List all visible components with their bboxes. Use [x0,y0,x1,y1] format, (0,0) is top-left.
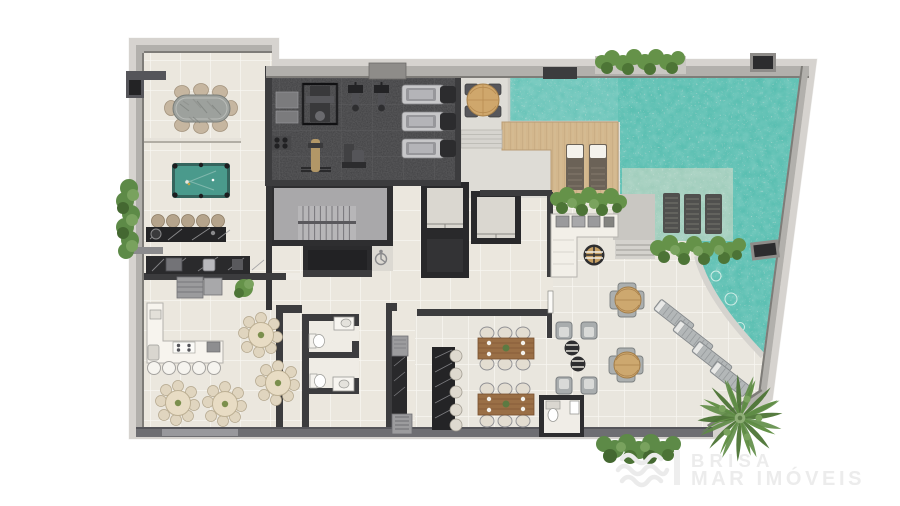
svg-text:MAR IMÓVEIS: MAR IMÓVEIS [691,466,865,490]
